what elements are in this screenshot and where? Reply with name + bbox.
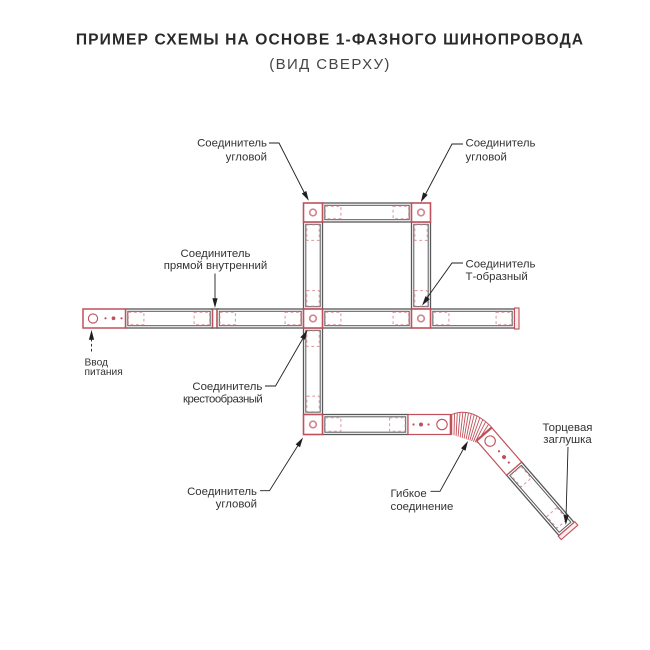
svg-text:угловой: угловой — [226, 151, 267, 163]
svg-text:Соединитель: Соединитель — [197, 138, 267, 150]
svg-text:Соединитель: Соединитель — [466, 258, 536, 270]
svg-text:заглушка: заглушка — [543, 434, 592, 446]
svg-text:угловой: угловой — [216, 498, 257, 510]
svg-text:Соединитель: Соединитель — [187, 486, 257, 498]
svg-text:угловой: угловой — [466, 151, 507, 163]
svg-text:(ВИД СВЕРХУ): (ВИД СВЕРХУ) — [269, 56, 391, 73]
svg-text:Т-образный: Т-образный — [466, 271, 528, 283]
svg-text:Гибкое: Гибкое — [391, 488, 427, 500]
svg-text:соединение: соединение — [391, 501, 454, 513]
svg-text:крестообразный: крестообразный — [183, 394, 262, 406]
svg-text:прямой внутренний: прямой внутренний — [164, 260, 267, 272]
svg-text:Торцевая: Торцевая — [543, 422, 593, 434]
svg-text:питания: питания — [85, 367, 123, 378]
svg-text:Соединитель: Соединитель — [181, 248, 251, 260]
svg-text:ПРИМЕР СХЕМЫ НА ОСНОВЕ 1-ФАЗНО: ПРИМЕР СХЕМЫ НА ОСНОВЕ 1-ФАЗНОГО ШИНОПРО… — [76, 32, 584, 49]
svg-text:Соединитель: Соединитель — [466, 138, 536, 150]
svg-text:Соединитель: Соединитель — [192, 381, 262, 393]
